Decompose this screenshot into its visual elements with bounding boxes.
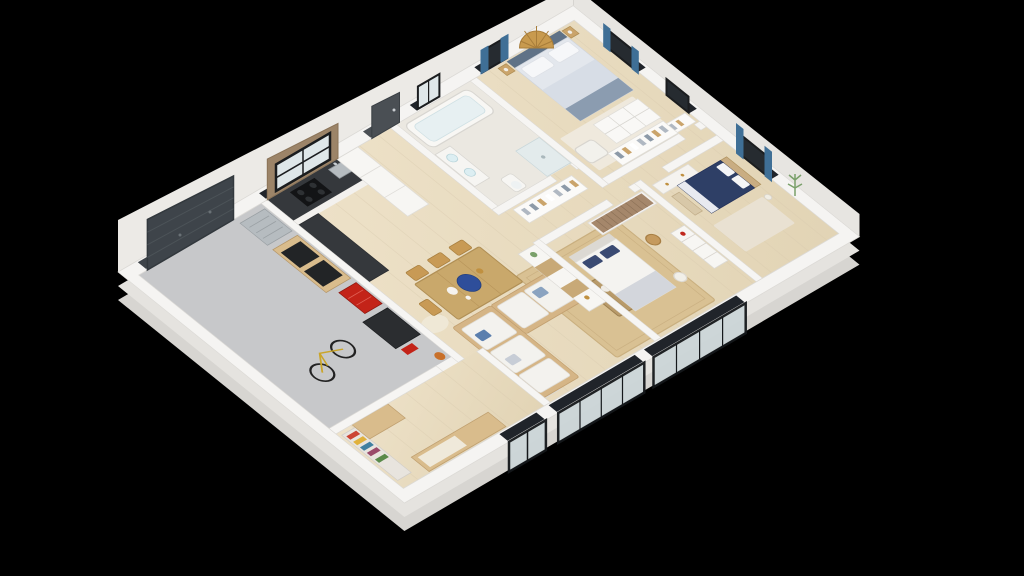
curtain-right	[765, 146, 773, 183]
door-handle	[393, 109, 396, 112]
door-dot	[209, 211, 212, 214]
curtain-left	[736, 123, 744, 160]
door-dot	[179, 234, 182, 237]
floor-plan-canvas	[0, 0, 1024, 576]
screenshot-root	[0, 0, 1024, 576]
curtain-left	[481, 45, 489, 74]
curtain-right	[501, 34, 509, 63]
